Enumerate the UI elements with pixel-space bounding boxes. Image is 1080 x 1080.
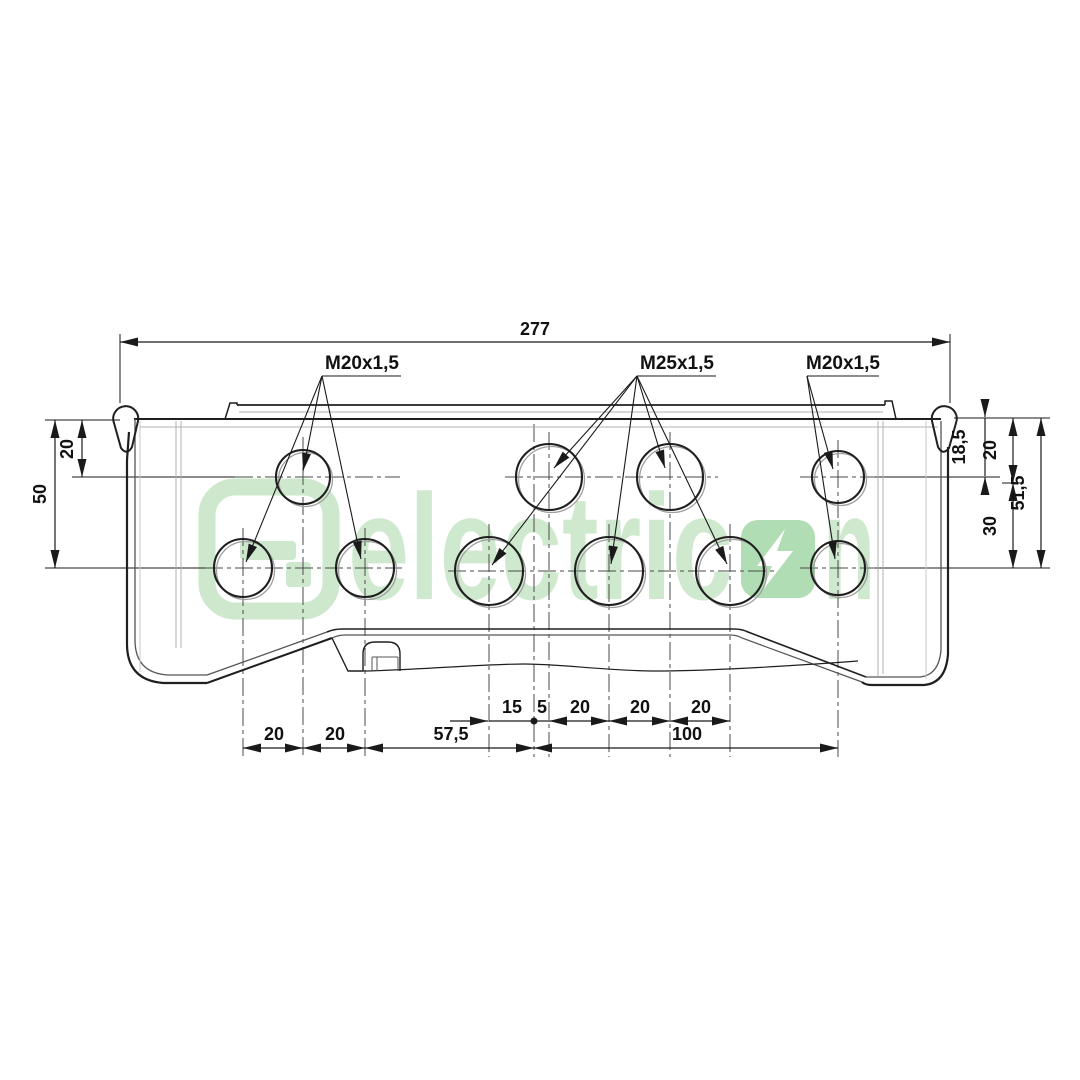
dim-text-left-50: 50 bbox=[30, 484, 50, 504]
dim-text-20a: 20 bbox=[570, 697, 590, 717]
watermark: electric n bbox=[207, 463, 875, 631]
thread-label: M20x1,5 bbox=[325, 353, 399, 374]
dims-bottom-upper: 15 5 20 20 20 bbox=[450, 697, 730, 725]
dim-text-20e: 20 bbox=[325, 724, 345, 744]
dims-right: 18,5 20 30 51,5 bbox=[949, 402, 1041, 568]
dim-text-20d: 20 bbox=[264, 724, 284, 744]
cable-spout-feature bbox=[363, 642, 400, 671]
dim-text-5: 5 bbox=[537, 697, 547, 717]
dim-text-right-51-5: 51,5 bbox=[1008, 475, 1028, 510]
dim-text-15: 15 bbox=[502, 697, 522, 717]
dim-text-right-20: 20 bbox=[980, 440, 1000, 460]
thread-label: M20x1,5 bbox=[806, 353, 880, 374]
dim-text-20c: 20 bbox=[691, 697, 711, 717]
dim-text-left-20: 20 bbox=[57, 439, 77, 459]
dims-left: 20 50 bbox=[30, 420, 82, 568]
dim-text-right-18-5: 18,5 bbox=[949, 429, 969, 464]
watermark-suffix: n bbox=[823, 463, 875, 631]
dim-text-277: 277 bbox=[520, 319, 550, 339]
dim-text-right-30: 30 bbox=[980, 516, 1000, 536]
dims-bottom-lower: 20 20 57,5 100 bbox=[243, 724, 838, 748]
technical-drawing-page: electric n bbox=[0, 0, 1080, 1080]
dim-text-100: 100 bbox=[672, 724, 702, 744]
watermark-g-logo-dot bbox=[286, 562, 311, 587]
dim-text-20b: 20 bbox=[630, 697, 650, 717]
thread-label: M25x1,5 bbox=[640, 353, 714, 374]
watermark-word: electric bbox=[348, 463, 733, 631]
dim-text-57-5: 57,5 bbox=[433, 724, 468, 744]
enclosure-drilling-drawing: electric n bbox=[0, 0, 1080, 1080]
